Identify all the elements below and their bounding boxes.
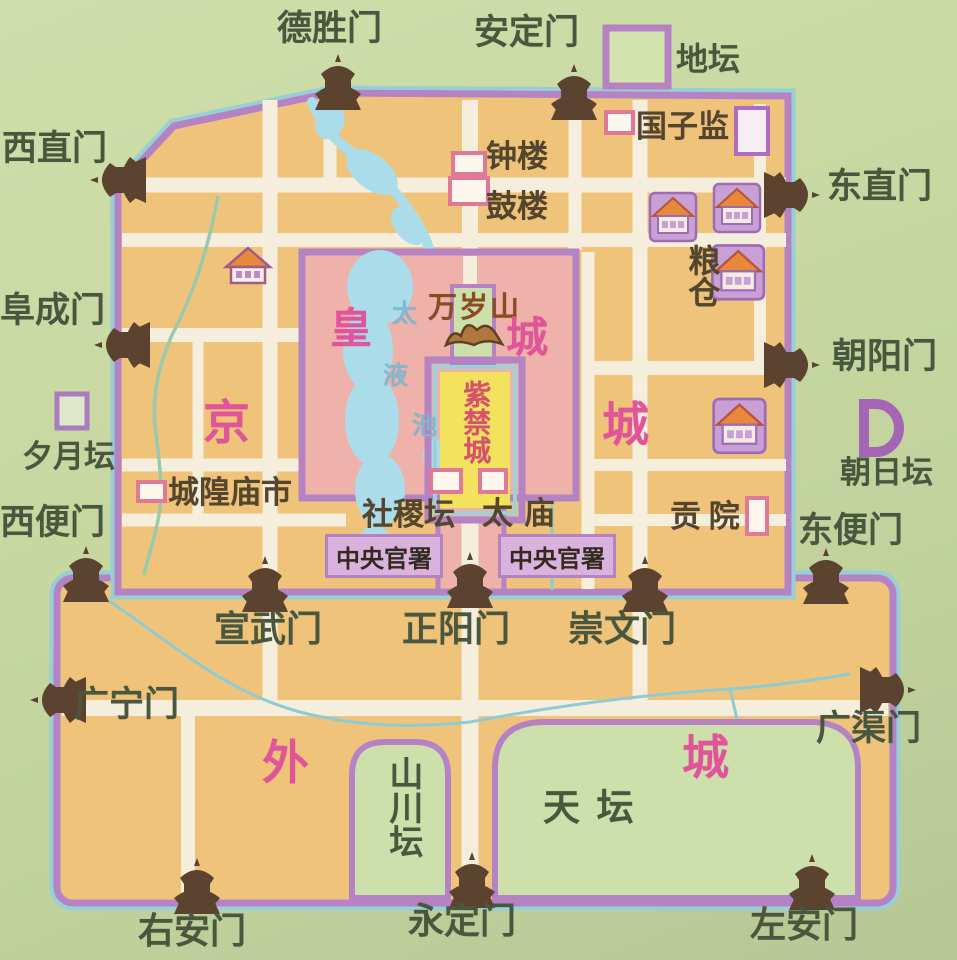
taimiao-marker [480, 470, 506, 492]
label-taimiao: 太庙 [482, 497, 566, 531]
beijing-historical-map: 德胜门 安定门 地坛 西直门 国子监 钟楼 鼓楼 东直门 粮仓 阜成门 皇 万岁… [0, 0, 957, 960]
shejitan-marker [431, 470, 461, 492]
label-gongyuan: 贡院 [670, 500, 748, 534]
label-forbidden-city: 紫禁城 [459, 380, 491, 464]
central-offices-west: 中央官署 [325, 534, 443, 578]
label-guangqumen: 广渠门 [816, 710, 921, 749]
label-cheng-inner: 城 [602, 400, 649, 452]
drum-tower-marker [450, 178, 488, 204]
xiyuetan-marker [57, 394, 87, 428]
label-ditan: 地坛 [676, 42, 740, 77]
label-deshengmen: 德胜门 [277, 10, 382, 49]
label-guozijian: 国子监 [636, 110, 729, 144]
central-offices-east: 中央官署 [498, 534, 616, 578]
label-jing: 京 [203, 398, 250, 450]
label-xiyuetan: 夕月坛 [22, 440, 115, 474]
label-dongzhimen: 东直门 [827, 168, 932, 207]
label-zuoanmen: 左安门 [750, 906, 858, 946]
label-taiye-tai: 太 [392, 300, 417, 328]
northeast-compound-marker [736, 108, 768, 154]
gongyuan-marker [747, 498, 767, 534]
label-fuchengmen: 阜成门 [0, 292, 105, 331]
label-huang: 皇 [330, 306, 372, 352]
label-tiantan: 天坛 [543, 788, 650, 829]
label-chenghuang-market: 城隍庙市 [168, 476, 292, 510]
label-drum-tower: 鼓楼 [486, 190, 548, 224]
label-wai: 外 [262, 738, 309, 790]
label-xuanwumen: 宣武门 [214, 610, 322, 650]
label-guangningmen: 广宁门 [74, 686, 179, 725]
label-dongbianmen: 东便门 [798, 512, 903, 551]
guozijian-marker [606, 112, 633, 133]
chenghuang-marker [138, 482, 165, 501]
ditan-legend-square [606, 28, 668, 86]
label-youanmen: 右安门 [138, 912, 246, 952]
label-cheng-outer: 城 [682, 733, 729, 785]
label-shanchuantan: 山川坛 [380, 756, 425, 858]
label-chongwenmen: 崇文门 [568, 610, 676, 650]
bell-tower-marker [453, 153, 485, 174]
label-taiye-ye: 液 [383, 362, 408, 390]
label-chaoyangmen: 朝阳门 [832, 338, 937, 377]
label-shejitan: 社稷坛 [362, 498, 455, 532]
label-andingmen: 安定门 [474, 14, 579, 53]
label-cheng-imperial: 城 [506, 315, 548, 361]
chaoritan-marker [864, 404, 899, 452]
label-yongdingmen: 永定门 [408, 902, 516, 942]
label-zhengyangmen: 正阳门 [402, 610, 510, 650]
label-taiye-chi: 池 [412, 412, 437, 440]
label-xizhimen: 西直门 [2, 130, 107, 169]
label-chaoritan: 朝日坛 [840, 456, 933, 490]
label-xibianmen: 西便门 [0, 504, 105, 543]
label-granary: 粮仓 [679, 244, 725, 308]
map-canvas [0, 0, 957, 960]
label-bell-tower: 钟楼 [486, 140, 548, 174]
deshengmen-icon [315, 54, 361, 110]
